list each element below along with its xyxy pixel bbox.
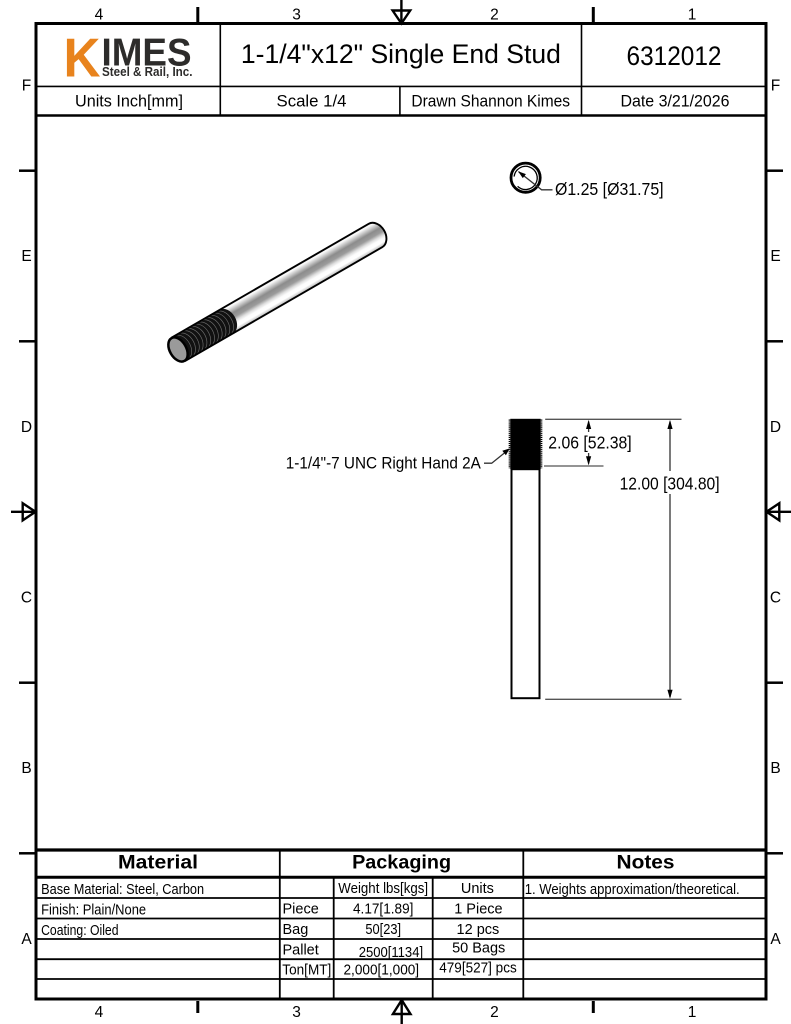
svg-text:E: E	[21, 248, 31, 265]
svg-text:12 pcs: 12 pcs	[457, 922, 500, 938]
svg-text:1-1/4"-7 UNC Right Hand 2A: 1-1/4"-7 UNC Right Hand 2A	[286, 453, 482, 472]
svg-text:12.00 [304.80]: 12.00 [304.80]	[620, 474, 720, 494]
svg-text:K: K	[64, 27, 101, 89]
svg-text:Weight lbs[kgs]: Weight lbs[kgs]	[338, 881, 428, 897]
svg-text:2: 2	[490, 7, 499, 24]
svg-text:50 Bags: 50 Bags	[452, 941, 505, 957]
svg-text:479[527] pcs: 479[527] pcs	[439, 961, 517, 977]
svg-text:Ø1.25 [Ø31.75]: Ø1.25 [Ø31.75]	[555, 179, 664, 199]
svg-text:D: D	[770, 419, 781, 436]
svg-text:B: B	[770, 760, 780, 777]
svg-text:4: 4	[95, 7, 104, 24]
svg-text:3: 3	[292, 1004, 301, 1021]
svg-text:50[23]: 50[23]	[365, 922, 401, 938]
svg-text:2: 2	[490, 1004, 499, 1021]
svg-text:Steel & Rail, Inc.: Steel & Rail, Inc.	[102, 64, 193, 79]
svg-text:Notes: Notes	[617, 853, 675, 874]
svg-text:D: D	[21, 419, 32, 436]
svg-text:4.17[1.89]: 4.17[1.89]	[353, 901, 413, 917]
svg-text:Pallet: Pallet	[283, 942, 319, 958]
svg-text:1-1/4"x12" Single End Stud: 1-1/4"x12" Single End Stud	[241, 39, 561, 69]
svg-text:6312012: 6312012	[627, 41, 722, 71]
svg-text:Ton[MT]: Ton[MT]	[282, 963, 331, 979]
svg-text:A: A	[21, 931, 32, 948]
svg-text:2.06 [52.38]: 2.06 [52.38]	[548, 433, 631, 453]
svg-text:Units Inch[mm]: Units Inch[mm]	[75, 92, 183, 111]
svg-text:Packaging: Packaging	[352, 853, 451, 874]
svg-text:E: E	[770, 248, 780, 265]
svg-text:Material: Material	[118, 853, 198, 874]
svg-text:C: C	[21, 590, 32, 607]
svg-text:1. Weights approximation/theor: 1. Weights approximation/theoretical.	[525, 882, 740, 898]
svg-text:Finish: Plain/None: Finish: Plain/None	[41, 902, 146, 918]
svg-text:1: 1	[688, 1004, 697, 1021]
svg-text:Scale 1/4: Scale 1/4	[277, 92, 347, 111]
svg-text:Coating: Oiled: Coating: Oiled	[41, 923, 118, 939]
svg-text:Bag: Bag	[283, 922, 309, 938]
svg-text:Drawn Shannon Kimes: Drawn Shannon Kimes	[411, 92, 570, 111]
svg-text:Date 3/21/2026: Date 3/21/2026	[621, 92, 730, 111]
svg-text:1 Piece: 1 Piece	[454, 901, 502, 917]
svg-text:4: 4	[95, 1004, 104, 1021]
svg-text:Units: Units	[461, 881, 494, 897]
svg-text:Piece: Piece	[283, 901, 319, 917]
svg-text:F: F	[771, 78, 780, 95]
svg-text:Base Material: Steel, Carbon: Base Material: Steel, Carbon	[41, 882, 204, 898]
svg-text:1: 1	[688, 7, 697, 24]
svg-text:2,000[1,000]: 2,000[1,000]	[344, 963, 420, 979]
svg-text:A: A	[770, 931, 781, 948]
svg-text:C: C	[770, 590, 781, 607]
svg-text:2500[1134]: 2500[1134]	[359, 945, 423, 961]
svg-text:F: F	[22, 78, 31, 95]
svg-text:3: 3	[292, 7, 301, 24]
svg-text:B: B	[21, 760, 31, 777]
